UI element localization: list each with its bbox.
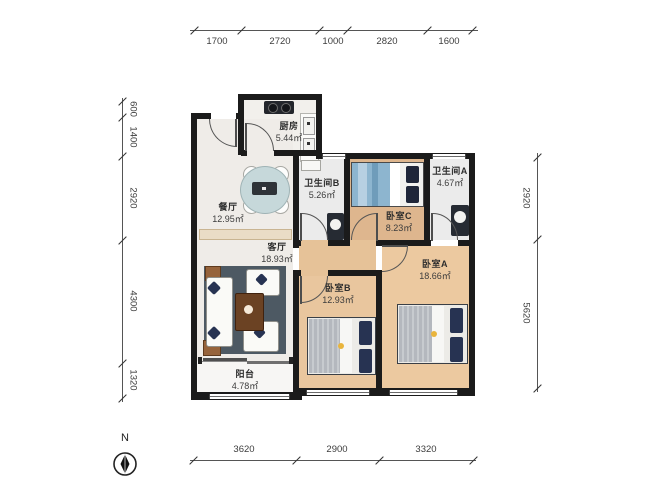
window [322, 154, 346, 159]
dim-top-1: 1700 [206, 36, 227, 47]
balcony-slider-leaf [203, 358, 247, 361]
bed-c-blanket-stripe [372, 163, 378, 206]
dim-bottom-1: 3620 [233, 444, 254, 455]
bed-a-blanket [399, 306, 432, 362]
bed-b-pillow [359, 349, 372, 373]
room-name: 卫生间A [432, 166, 468, 178]
wall [238, 94, 322, 100]
bed-b-lamp-icon [338, 343, 344, 349]
room-name: 客厅 [261, 242, 293, 254]
wall [344, 153, 350, 246]
floor-plan-image: 厨房 5.44㎡ 卫生间B 5.26㎡ 卫生间A 4.67㎡ 卧室C 8.23㎡… [0, 0, 667, 500]
bath-b-basin [301, 160, 321, 171]
bed-a-lamp-icon [431, 331, 437, 337]
wall [328, 270, 382, 276]
room-label-bath-a: 卫生间A 4.67㎡ [432, 166, 468, 189]
bed-a-pillow [450, 308, 463, 333]
sideboard [199, 229, 292, 240]
bed-c-sheet-fold [390, 163, 400, 206]
dim-bottom-3: 3320 [415, 444, 436, 455]
dim-line-top [190, 30, 478, 31]
room-area: 18.66㎡ [419, 271, 451, 283]
room-area: 12.93㎡ [322, 295, 354, 307]
dim-line-left [122, 98, 123, 402]
stove-burner-right-icon [281, 103, 291, 113]
room-label-kitchen: 厨房 5.44㎡ [276, 121, 303, 144]
room-area: 4.67㎡ [432, 178, 468, 190]
kitchen-sink-upper [303, 117, 315, 135]
wall [328, 240, 350, 246]
wall [376, 272, 382, 396]
wall [238, 94, 244, 155]
wall [293, 153, 299, 248]
room-label-living: 客厅 18.93㎡ [261, 242, 293, 265]
table-runner-dot [262, 187, 266, 190]
room-name: 卧室C [386, 211, 413, 223]
stove-burner-left-icon [268, 103, 278, 113]
compass-icon [105, 446, 145, 486]
dim-top-5: 1600 [438, 36, 459, 47]
bed-a-pillow [450, 337, 463, 362]
dim-top-2: 2720 [269, 36, 290, 47]
room-area: 5.44㎡ [276, 133, 303, 145]
room-area: 5.26㎡ [304, 190, 340, 202]
room-area: 8.23㎡ [386, 223, 413, 235]
bed-c-blanket-stripe [358, 163, 367, 206]
dim-right-2: 5620 [521, 302, 532, 323]
bath-b-toilet-bowl [330, 219, 341, 230]
dim-left-1: 600 [128, 101, 139, 117]
bed-a-door-leaf [382, 245, 408, 247]
compass-north-label: N [121, 432, 129, 444]
coffee-table-tray [244, 305, 253, 314]
room-label-dining: 餐厅 12.95㎡ [212, 202, 244, 225]
window [306, 390, 370, 395]
wall [424, 153, 430, 246]
wall [293, 270, 299, 400]
window [389, 390, 458, 395]
room-name: 卫生间B [304, 178, 340, 190]
kitchen-sink-lower-drain [307, 142, 310, 145]
room-label-bed-c: 卧室C 8.23㎡ [386, 211, 413, 234]
window [432, 154, 466, 159]
room-name: 阳台 [232, 369, 259, 381]
room-label-bed-a: 卧室A 18.66㎡ [419, 259, 451, 282]
dim-line-bottom [190, 460, 476, 461]
room-name: 卧室A [419, 259, 451, 271]
bed-b-blanket [309, 319, 340, 373]
dim-line-right [537, 153, 538, 392]
balcony-slider-post [198, 357, 202, 364]
room-label-balcony: 阳台 4.78㎡ [232, 369, 259, 392]
dim-left-3: 2920 [128, 187, 139, 208]
bath-b-door-leaf [300, 213, 302, 241]
wall [191, 113, 197, 400]
dim-bottom-2: 2900 [326, 444, 347, 455]
room-name: 餐厅 [212, 202, 244, 214]
bed-b-door-leaf [300, 276, 302, 304]
dim-top-4: 2820 [376, 36, 397, 47]
room-name: 厨房 [276, 121, 303, 133]
room-area: 18.93㎡ [261, 254, 293, 266]
kitchen-door-leaf [245, 123, 247, 151]
kitchen-sink-upper-drain [307, 122, 310, 125]
bed-c-pillow [406, 166, 419, 183]
dim-right-1: 2920 [521, 187, 532, 208]
room-label-bed-b: 卧室B 12.93㎡ [322, 283, 354, 306]
bed-b-pillow [359, 321, 372, 345]
bed-c-door-leaf [376, 213, 378, 241]
dim-top-3: 1000 [322, 36, 343, 47]
bath-a-door-leaf [431, 213, 433, 241]
balcony-slider-leaf [247, 361, 291, 364]
room-name: 卧室B [322, 283, 354, 295]
bed-c-pillow [406, 186, 419, 203]
dim-left-5: 1320 [128, 369, 139, 390]
wall [458, 240, 472, 246]
window [209, 394, 290, 399]
wall [469, 153, 475, 396]
bath-a-toilet-bowl [454, 211, 466, 223]
room-area: 4.78㎡ [232, 381, 259, 393]
entry-door-leaf [235, 119, 237, 147]
room-label-bath-b: 卫生间B 5.26㎡ [304, 178, 340, 201]
room-area: 12.95㎡ [212, 214, 244, 226]
dim-left-4: 4300 [128, 290, 139, 311]
dim-left-2: 1400 [128, 126, 139, 147]
